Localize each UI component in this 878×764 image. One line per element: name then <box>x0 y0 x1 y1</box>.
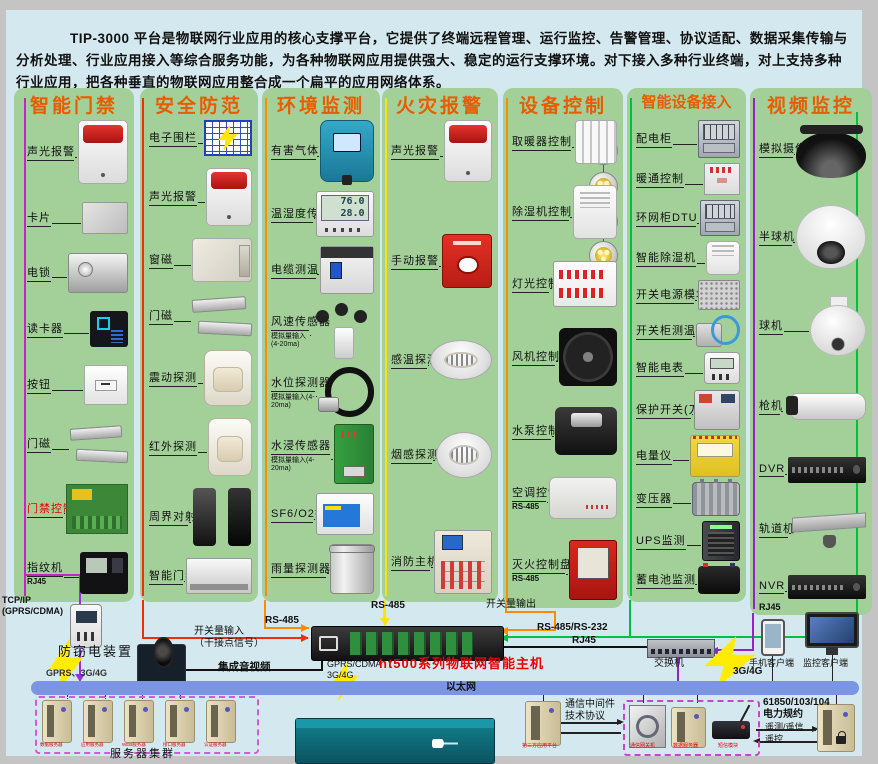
smart-access-label: 智能门禁 <box>149 567 183 585</box>
txt: 配电柜 <box>636 130 672 148</box>
switchgear-temp-icon <box>696 315 740 347</box>
smart-access-icon <box>186 558 252 594</box>
ring-cabinet-dtu-icon <box>700 200 740 236</box>
smart-dehumidifier-label: 智能除湿机 <box>636 249 696 267</box>
rainfall-detector: 雨量探测器 <box>271 544 374 594</box>
cluster-server-icon <box>83 700 113 743</box>
pointer-line <box>189 522 191 523</box>
bullet-camera-label: 枪机 <box>759 397 780 415</box>
rs485-col4-label: RS-485 <box>371 600 405 612</box>
fan-control: 风机控制 <box>512 328 617 386</box>
txt: 按钮 <box>27 376 51 394</box>
power-cabinet-icon <box>698 120 740 158</box>
ups-monitor: UPS监测 <box>636 521 740 561</box>
bus-line <box>506 98 508 602</box>
battery-monitor: 蓄电池监测 <box>636 566 740 594</box>
pointer-line <box>75 157 77 158</box>
txt: 灭火控制盘RS-485 <box>512 556 565 583</box>
infrared-detector-label: 红外探测 <box>149 438 197 456</box>
sf6-o2-detector-label: SF6/O2探测器 <box>271 505 313 523</box>
bullet-camera: 枪机 <box>759 383 866 429</box>
sound-light-alarm: 声光报警 <box>27 120 128 184</box>
dvr-label: DVR <box>759 463 784 477</box>
wire-col2-v <box>142 600 144 639</box>
hvac-control: 暖通控制 <box>636 163 740 195</box>
pointer-line <box>785 591 787 592</box>
do-output-label: 开关量输出 <box>486 599 536 611</box>
host-name-label: ht500系列物联网智能主机 <box>379 656 544 672</box>
cluster-server-icon <box>42 700 72 743</box>
ring-cabinet-dtu-label: 环网柜DTU <box>636 209 696 227</box>
arrow-rs485-right <box>301 624 309 632</box>
access-controller: 门禁控制器 <box>27 484 128 534</box>
txt: 手动报警 <box>391 252 438 270</box>
sound-light-alarm-label: 声光报警 <box>149 188 197 206</box>
column-smart-device-access: 智能设备接入配电柜暖通控制环网柜DTU智能除湿机开关电源模块开关柜测温智能电表保… <box>627 88 746 602</box>
column-title-video-surveillance: 视频监控 <box>750 88 872 118</box>
anti-theft-label: 防窃电装置 <box>58 644 133 660</box>
pointer-line <box>794 154 795 155</box>
dehumidifier-control: 除湿机控制 <box>512 185 617 239</box>
water-level-detector-sub-label: 模拟量输入(4-20ma) <box>271 392 315 409</box>
txt: 烟感探测 <box>391 446 432 464</box>
pointer-line <box>198 202 205 203</box>
column-title-environment: 环境监测 <box>262 88 380 118</box>
comm-server-icon <box>671 707 706 748</box>
telemetry-label: 遥测/遥信 <box>765 722 804 733</box>
fingerprint-terminal-icon <box>80 552 128 594</box>
third-party-server-icon <box>525 701 561 746</box>
tcpip-label: TCP/IP (GPRS/CDMA) <box>2 595 63 617</box>
di-input-label: 开关量输入 （干接点信号） <box>194 626 264 650</box>
fan-control-label: 风机控制 <box>512 348 555 366</box>
water-level-detector-label: 水位探测器 <box>271 374 315 392</box>
dome-camera: 半球机 <box>759 205 866 269</box>
items: 有害气体温湿度传感器76.0 28.0电缆测温风速传感器模拟量输入(4-20ma… <box>271 120 374 594</box>
protection-switch-label: 保护开关(刀闸) <box>636 401 691 419</box>
pointer-line <box>687 545 701 546</box>
speed-dome-label: 球机 <box>759 317 783 335</box>
txt: 除湿机控制 <box>512 203 569 221</box>
electric-lock-label: 电锁 <box>27 264 51 282</box>
exit-button: 按钮 <box>27 365 128 405</box>
analog-camera-label: 模拟摄像机 <box>759 140 793 158</box>
smart-dehumidifier: 智能除湿机 <box>636 241 740 275</box>
heater-control-icon <box>575 120 617 164</box>
rail-camera: 轨道机 <box>759 510 866 548</box>
transformer-icon <box>692 482 740 516</box>
txt: 保护开关(刀闸) <box>636 401 691 419</box>
pointer-line <box>52 390 83 391</box>
dvr: DVR <box>759 457 866 483</box>
sound-light-alarm-icon <box>444 120 492 182</box>
water-immersion-sensor-label: 水浸传感器 <box>271 437 330 455</box>
bus-line <box>265 98 267 596</box>
hvac-control-label: 暖通控制 <box>636 170 684 188</box>
txt: 声光报警 <box>149 188 197 206</box>
electronic-fence-icon <box>204 120 252 156</box>
txt: 灯光控制 <box>512 275 549 293</box>
heat-detector: 感温探测 <box>391 340 492 380</box>
sms-modem-icon <box>712 721 750 739</box>
txt: DVR <box>759 463 784 477</box>
sound-light-alarm-label: 声光报警 <box>391 142 439 160</box>
pointer-line <box>547 502 548 503</box>
perimeter-beam: 周界对射 <box>149 488 252 546</box>
bus-line <box>630 98 632 596</box>
pointer-line <box>566 574 568 575</box>
video-surveillance-footer-label: RJ45 <box>759 602 781 612</box>
sms-label: 短信模块 <box>718 743 738 749</box>
battery-monitor-label: 蓄电池监测 <box>636 571 694 589</box>
pointer-line <box>781 411 783 412</box>
pointer-line <box>784 331 809 332</box>
txt: 半球机 <box>759 228 792 246</box>
pointer-line <box>433 460 435 461</box>
sf6-o2-detector: SF6/O2探测器 <box>271 493 374 535</box>
txt: 声光报警 <box>391 142 439 160</box>
pointer-line <box>673 503 691 504</box>
wind-speed-sensor-sub-label: 模拟量输入(4-20ma) <box>271 331 309 348</box>
power-meter-label: 电量仪 <box>636 447 672 465</box>
smart-meter-label: 智能电表 <box>636 359 684 377</box>
pointer-line <box>64 333 89 334</box>
power-meter-icon <box>690 435 740 477</box>
txt: 变压器 <box>636 490 672 508</box>
nvr-icon <box>788 575 866 599</box>
door-magnet-icon <box>192 294 252 338</box>
txt: 电子围栏 <box>149 129 197 147</box>
pointer-line <box>198 143 203 144</box>
txt: 卡片 <box>27 209 51 227</box>
column-title-security: 安全防范 <box>140 88 258 118</box>
bullet-camera-icon <box>784 383 866 429</box>
window-magnet-icon <box>192 238 252 282</box>
pointer-line <box>52 223 81 224</box>
column-access-control: 智能门禁声光报警卡片电锁读卡器按钮门磁门禁控制器指纹机RJ45 <box>14 88 134 602</box>
wire-col6-v <box>629 600 631 638</box>
sound-light-alarm-icon <box>78 120 128 184</box>
txt: 电缆测温 <box>271 261 316 279</box>
txt: 球机 <box>759 317 783 335</box>
wind-speed-sensor-label: 风速传感器 <box>271 313 309 331</box>
dehumidifier-control-label: 除湿机控制 <box>512 203 569 221</box>
pointer-line <box>327 573 329 574</box>
txt: 感温探测 <box>391 351 427 369</box>
ac-control-icon <box>549 477 617 519</box>
txt: 枪机 <box>759 397 780 415</box>
pointer-line <box>314 218 315 219</box>
switch-label: 交换机 <box>654 658 684 670</box>
items: 声光报警卡片电锁读卡器按钮门磁门禁控制器指纹机RJ45 <box>27 120 128 594</box>
smoke-detector-label: 烟感探测 <box>391 446 432 464</box>
pointer-line <box>198 383 203 384</box>
switching-power-module-label: 开关电源模块 <box>636 286 694 304</box>
electronic-fence: 电子围栏 <box>149 120 252 156</box>
av-label: 集成音视频 <box>218 661 271 674</box>
column-title-fire-alarm: 火灾报警 <box>382 88 498 118</box>
txt: 水位探测器模拟量输入(4-20ma) <box>271 374 315 409</box>
water-level-detector: 水位探测器模拟量输入(4-20ma) <box>271 367 374 415</box>
txt: 周界对射 <box>149 508 188 526</box>
lighting-control-label: 灯光控制 <box>512 275 549 293</box>
rs485-col3-label: RS-485 <box>265 615 299 627</box>
cluster-label: 服务器集群 <box>110 748 175 761</box>
nvr: NVR <box>759 575 866 599</box>
column-title-device-control: 设备控制 <box>503 88 623 118</box>
txt: 电量仪 <box>636 447 672 465</box>
platform-intro-text: TIP-3000 平台是物联网行业应用的核心支撑平台，它提供了终端远程管理、运行… <box>16 28 854 94</box>
txt: 红外探测 <box>149 438 197 456</box>
items: 配电柜暖通控制环网柜DTU智能除湿机开关电源模块开关柜测温智能电表保护开关(刀闸… <box>636 120 740 594</box>
pointer-line <box>692 414 693 415</box>
middleware-label: 通信中间件 技术协议 <box>565 699 615 723</box>
pointer-line <box>697 263 705 264</box>
txt: NVR <box>759 580 784 594</box>
lighting-control-icon <box>553 261 617 307</box>
cluster-server-icon <box>165 700 195 743</box>
txt: 轨道机 <box>759 520 788 538</box>
hvac-control-icon <box>704 163 740 195</box>
pointer-line <box>785 474 787 475</box>
items: 声光报警手动报警感温探测烟感探测消防主机 <box>391 120 492 594</box>
cluster-server-icon <box>124 700 154 743</box>
id-card: 卡片 <box>27 202 128 234</box>
speed-dome-icon <box>810 296 866 356</box>
rail-camera-label: 轨道机 <box>759 520 788 538</box>
pointer-line <box>556 361 558 362</box>
ethernet-label: 以太网 <box>446 682 476 694</box>
card-reader-icon <box>90 311 128 347</box>
door-magnet-icon <box>70 423 128 465</box>
txt: 窗磁 <box>149 251 173 269</box>
wire-mw2 <box>557 732 621 734</box>
g3g4-label: 3G/4G <box>733 666 762 678</box>
pointer-line <box>310 335 311 336</box>
analog-camera-icon <box>796 120 866 178</box>
sound-light-alarm-label: 声光报警 <box>27 143 74 161</box>
wire-col5-h1 <box>505 611 556 613</box>
txt: 水浸传感器模拟量输入(4-20ma) <box>271 437 330 472</box>
txt: UPS监测 <box>636 532 686 550</box>
sound-light-alarm: 声光报警 <box>391 120 492 182</box>
column-title-smart-device-access: 智能设备接入 <box>627 88 746 118</box>
protection-switch-icon <box>694 390 740 430</box>
water-immersion-sensor: 水浸传感器模拟量输入(4-20ma) <box>271 424 374 484</box>
harmful-gas-detector-label: 有害气体 <box>271 142 316 160</box>
pointer-line <box>685 373 703 374</box>
analog-camera: 模拟摄像机 <box>759 120 866 178</box>
smart-access: 智能门禁 <box>149 558 252 594</box>
rainfall-detector-label: 雨量探测器 <box>271 560 326 578</box>
txt: 指纹机RJ45 <box>27 559 63 586</box>
lighting-control: 灯光控制 <box>512 261 617 307</box>
water-immersion-sensor-icon <box>334 424 374 484</box>
pointer-line <box>439 266 441 267</box>
pointer-line <box>673 460 689 461</box>
sound-light-alarm-icon <box>206 168 252 226</box>
smoke-detector-icon <box>436 432 492 478</box>
items: 电子围栏声光报警窗磁门磁震动探测红外探测周界对射智能门禁 <box>149 120 252 594</box>
card-reader-label: 读卡器 <box>27 320 63 338</box>
column-environment: 环境监测有害气体温湿度传感器76.0 28.0电缆测温风速传感器模拟量输入(4-… <box>262 88 380 602</box>
ups-monitor-label: UPS监测 <box>636 532 686 550</box>
txt: 震动探测 <box>149 369 197 387</box>
fire-host-label: 消防主机 <box>391 553 430 571</box>
txt: 空调控制RS-485 <box>512 484 546 511</box>
firewall-appliance-icon <box>295 718 495 764</box>
txt: 开关柜测温 <box>636 322 692 340</box>
pointer-line <box>697 223 699 224</box>
perimeter-beam-label: 周界对射 <box>149 508 188 526</box>
door-magnet: 门磁 <box>27 423 128 465</box>
txt: 风速传感器模拟量输入(4-20ma) <box>271 313 309 348</box>
pointer-line <box>317 274 319 275</box>
fire-host: 消防主机 <box>391 530 492 594</box>
nvr-label: NVR <box>759 580 784 594</box>
power-protocol-label: 61850/103/104 电力规约 <box>763 697 830 721</box>
txt: SF6/O2探测器 <box>271 505 313 523</box>
items: 取暖器控制除湿机控制灯光控制风机控制水泵控制空调控制RS-485灭火控制盘RS-… <box>512 120 617 600</box>
av-camera-board-icon <box>137 644 186 684</box>
arrow-di-right <box>301 634 309 642</box>
column-device-control: 设备控制取暖器控制除湿机控制灯光控制风机控制水泵控制空调控制RS-485灭火控制… <box>503 88 623 608</box>
monitor-label: 监控客户端 <box>803 658 848 669</box>
pointer-line <box>198 452 207 453</box>
bus-line <box>753 98 755 609</box>
ups-monitor-icon <box>702 521 740 561</box>
perimeter-beam-icon <box>192 488 252 546</box>
fire-extinguish-panel-sub-label: RS-485 <box>512 574 565 583</box>
txt: 智能除湿机 <box>636 249 696 267</box>
txt: 开关电源模块 <box>636 286 694 304</box>
txt: 模拟摄像机 <box>759 140 793 158</box>
smoke-detector: 烟感探测 <box>391 432 492 478</box>
host-conn-label: GPRS/CDMA 3G/4G <box>327 659 382 681</box>
txt: 有害气体 <box>271 142 316 160</box>
protection-switch: 保护开关(刀闸) <box>636 390 740 430</box>
fingerprint-terminal: 指纹机RJ45 <box>27 552 128 594</box>
comm-server-label: 数据服务器 <box>673 743 698 749</box>
pointer-line <box>685 184 703 185</box>
heater-control: 取暖器控制 <box>512 120 617 164</box>
mobile-client-icon <box>761 619 785 656</box>
column-title-access-control: 智能门禁 <box>14 88 134 118</box>
electric-lock: 电锁 <box>27 253 128 293</box>
smart-meter-icon <box>704 352 740 384</box>
fire-extinguish-panel: 灭火控制盘RS-485 <box>512 540 617 600</box>
wind-speed-sensor: 风速传感器模拟量输入(4-20ma) <box>271 303 374 359</box>
manual-alarm-icon <box>442 234 492 288</box>
battery-monitor-icon <box>698 566 740 594</box>
pump-control-icon <box>555 407 617 455</box>
dome-camera-label: 半球机 <box>759 228 792 246</box>
txt: 温湿度传感器 <box>271 205 313 223</box>
pointer-line <box>695 300 697 301</box>
cable-temperature: 电缆测温 <box>271 246 374 294</box>
transformer: 变压器 <box>636 482 740 516</box>
cable-temperature-icon <box>320 246 374 294</box>
smart-meter: 智能电表 <box>636 352 740 384</box>
bus-line <box>142 98 144 596</box>
pointer-line <box>789 533 791 534</box>
txt: 门禁控制器 <box>27 500 63 518</box>
bus-line <box>24 98 26 596</box>
wire-col7-v <box>752 613 754 651</box>
vibration-detector: 震动探测 <box>149 350 252 406</box>
exit-button-icon <box>84 365 128 405</box>
pointer-line <box>52 449 69 450</box>
rail-camera-icon <box>792 510 866 548</box>
dvr-icon <box>788 457 866 483</box>
fingerprint-terminal-sub-label: RJ45 <box>27 577 63 586</box>
fan-control-icon <box>559 328 617 386</box>
cable-temperature-label: 电缆测温 <box>271 261 316 279</box>
power-cabinet: 配电柜 <box>636 120 740 158</box>
door-magnet-label: 门磁 <box>149 307 173 325</box>
ethernet-bus-bar <box>31 681 859 695</box>
txt: 取暖器控制 <box>512 133 571 151</box>
water-level-detector-icon <box>318 367 374 415</box>
power-cabinet-label: 配电柜 <box>636 130 672 148</box>
pointer-line <box>793 242 795 243</box>
pointer-line <box>572 147 574 148</box>
sound-light-alarm: 声光报警 <box>149 168 252 226</box>
switchgear-temp-label: 开关柜测温 <box>636 322 692 340</box>
ac-control-label: 空调控制 <box>512 484 546 502</box>
txt: 水泵控制 <box>512 422 551 440</box>
txt: 消防主机 <box>391 553 430 571</box>
water-immersion-sensor-sub-label: 模拟量输入(4-20ma) <box>271 455 330 472</box>
pointer-line <box>550 288 552 289</box>
fire-extinguish-panel-label: 灭火控制盘 <box>512 556 565 574</box>
pointer-line <box>317 156 319 157</box>
dehumidifier-control-icon <box>573 185 617 239</box>
door-magnet-label: 门磁 <box>27 435 51 453</box>
pointer-line <box>174 321 191 322</box>
temp-humidity-sensor-label: 温湿度传感器 <box>271 205 313 223</box>
txt: 读卡器 <box>27 320 63 338</box>
pointer-line <box>64 513 65 514</box>
anti-theft-meter-icon <box>70 604 102 648</box>
transformer-label: 变压器 <box>636 490 672 508</box>
infrared-detector-icon <box>208 418 252 476</box>
ac-control: 空调控制RS-485 <box>512 477 617 519</box>
heater-control-label: 取暖器控制 <box>512 133 571 151</box>
rs485-232-label: RS-485/RS-232 <box>537 622 608 634</box>
pointer-line <box>431 567 433 568</box>
pointer-line <box>174 265 191 266</box>
pump-control-label: 水泵控制 <box>512 422 551 440</box>
temp-humidity-sensor-icon: 76.0 28.0 <box>316 191 374 237</box>
txt: 蓄电池监测 <box>636 571 694 589</box>
heat-detector-icon <box>430 340 492 380</box>
fire-extinguish-panel-icon <box>569 540 617 600</box>
txt: 雨量探测器 <box>271 560 326 578</box>
pointer-line <box>184 581 185 582</box>
monitor-client-icon <box>805 612 859 648</box>
column-fire-alarm: 火灾报警声光报警手动报警感温探测烟感探测消防主机 <box>382 88 498 602</box>
temp-humidity-sensor: 温湿度传感器76.0 28.0 <box>271 191 374 237</box>
ac-control-sub-label: RS-485 <box>512 502 546 511</box>
txt: 门磁 <box>27 435 51 453</box>
vibration-detector-label: 震动探测 <box>149 369 197 387</box>
gateway-label: 通信网关机 <box>630 743 655 749</box>
pointer-line <box>331 459 333 460</box>
cluster-server-label: WEB服务器 <box>122 742 146 747</box>
exit-button-label: 按钮 <box>27 376 51 394</box>
id-card-icon <box>82 202 128 234</box>
